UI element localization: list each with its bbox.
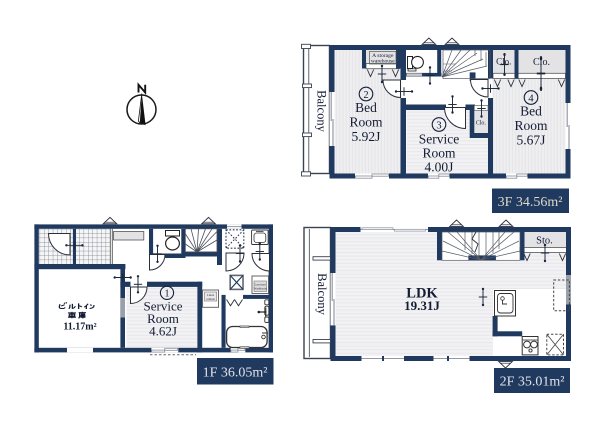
svg-text:5.92J: 5.92J bbox=[352, 129, 381, 144]
svg-text:19.31J: 19.31J bbox=[404, 298, 440, 313]
svg-text:Sto.: Sto. bbox=[536, 236, 553, 247]
svg-text:2F 35.01m²: 2F 35.01m² bbox=[500, 375, 565, 390]
svg-text:Clo.: Clo. bbox=[533, 57, 550, 68]
svg-text:Service: Service bbox=[419, 132, 459, 147]
svg-text:Washbasin: Washbasin bbox=[253, 287, 267, 291]
svg-text:Bed: Bed bbox=[520, 104, 542, 119]
svg-text:5.67J: 5.67J bbox=[517, 133, 546, 148]
svg-text:Clo.: Clo. bbox=[476, 121, 487, 127]
svg-text:3F 34.56m²: 3F 34.56m² bbox=[498, 195, 563, 210]
svg-text:Clo.: Clo. bbox=[496, 57, 511, 67]
svg-text:cabinet: cabinet bbox=[206, 297, 215, 301]
svg-text:warehouse: warehouse bbox=[371, 59, 395, 65]
svg-text:Room: Room bbox=[514, 118, 548, 133]
svg-text:Balcony: Balcony bbox=[315, 273, 329, 315]
svg-text:Bed: Bed bbox=[355, 100, 377, 115]
svg-text:3: 3 bbox=[436, 120, 441, 131]
svg-text:1F 36.05m²: 1F 36.05m² bbox=[203, 366, 268, 381]
svg-text:Balcony: Balcony bbox=[315, 90, 329, 132]
svg-text:11.17m²: 11.17m² bbox=[63, 322, 96, 333]
svg-text:4.62J: 4.62J bbox=[149, 324, 177, 339]
svg-text:4.00J: 4.00J bbox=[425, 160, 454, 175]
svg-text:Room: Room bbox=[349, 115, 383, 130]
svg-text:Room: Room bbox=[422, 146, 456, 161]
